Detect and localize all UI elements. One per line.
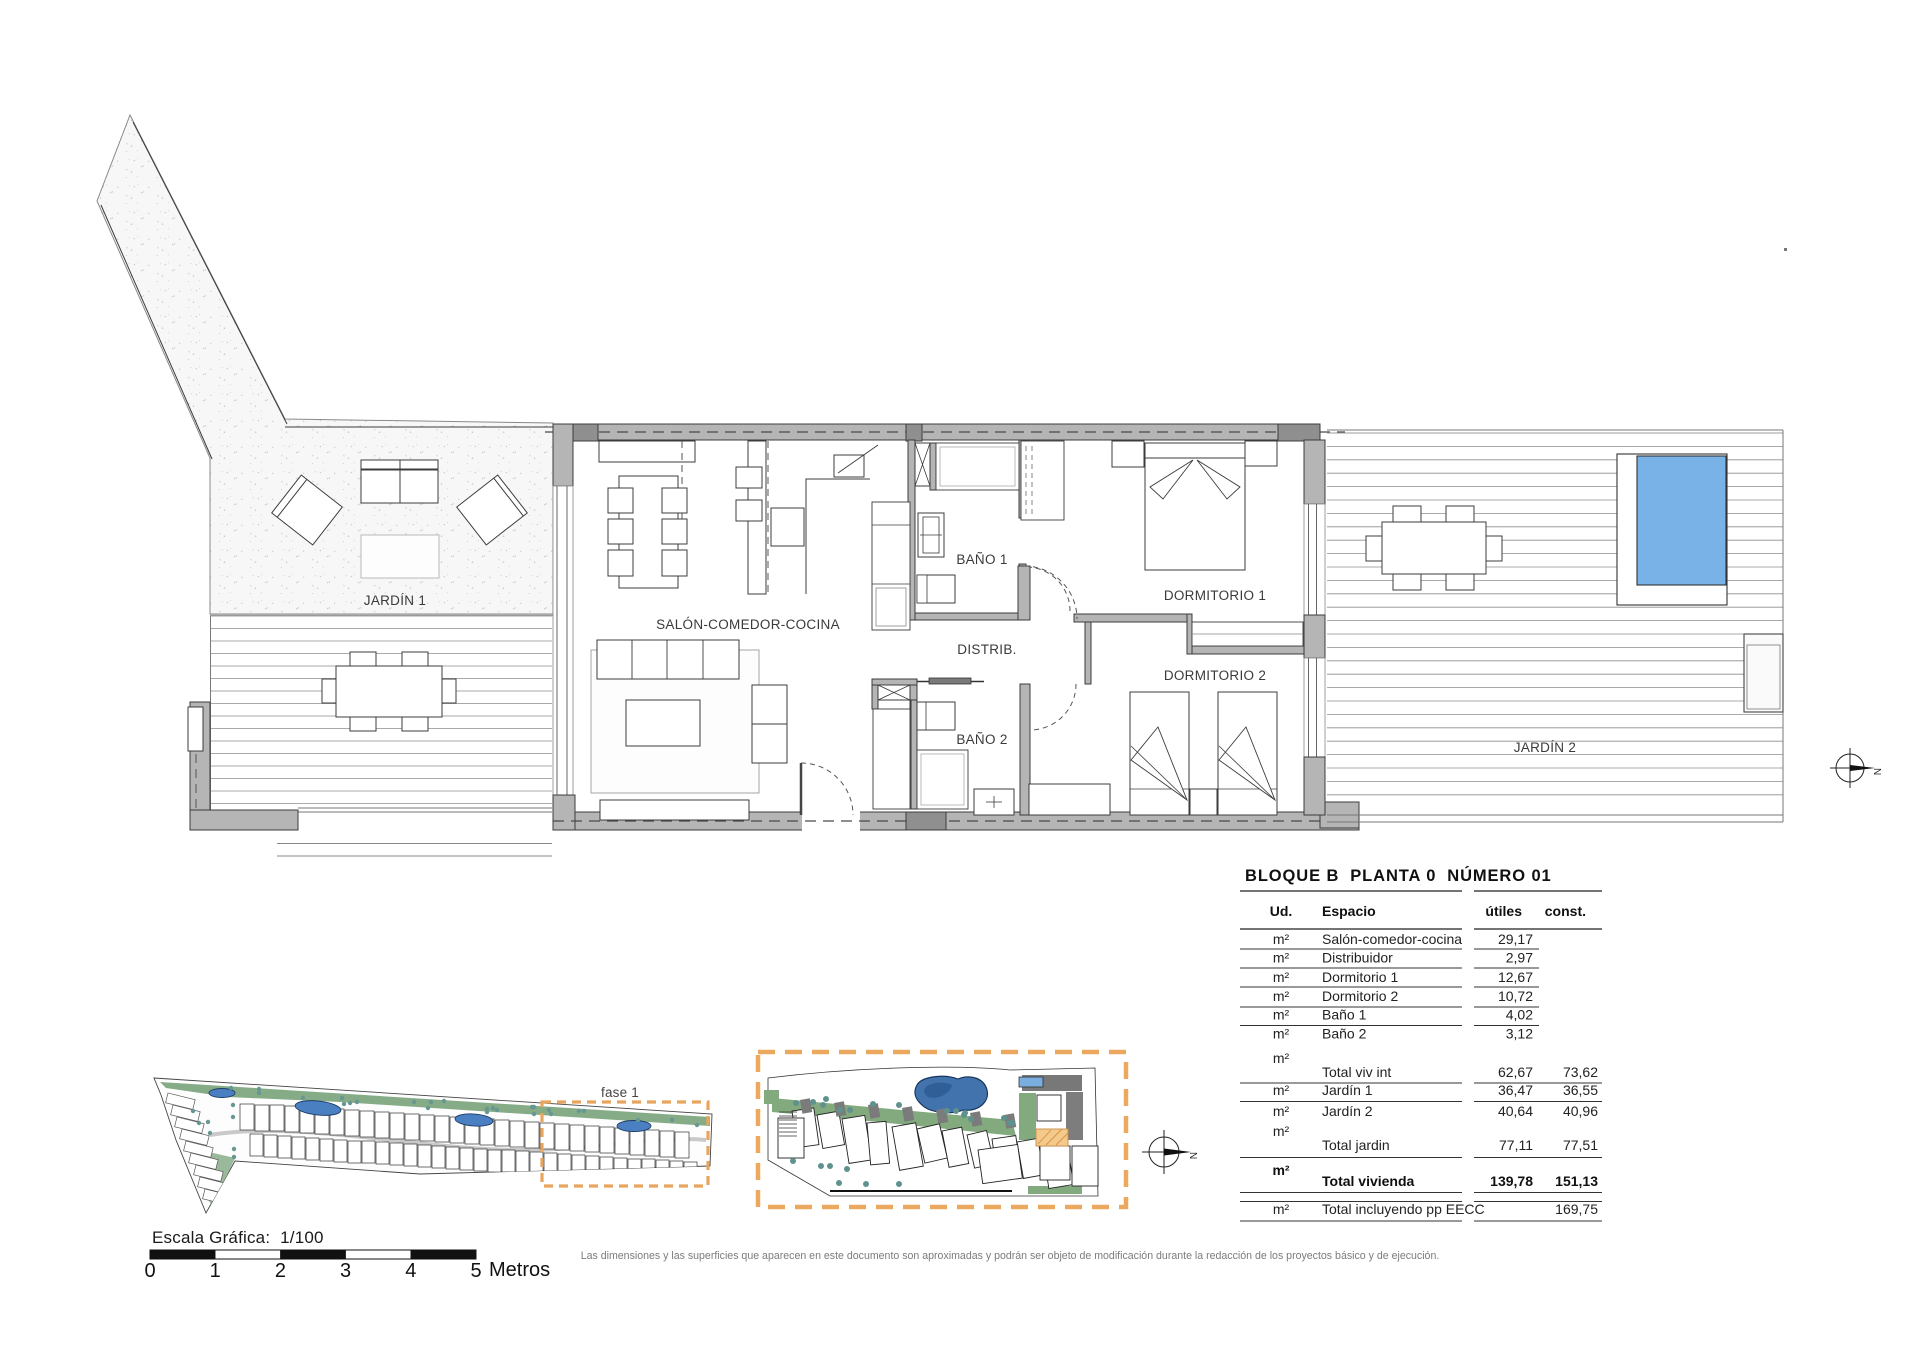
svg-text:DISTRIB.: DISTRIB.: [957, 642, 1016, 657]
svg-text:Baño 2: Baño 2: [1322, 1026, 1367, 1042]
svg-text:169,75: 169,75: [1555, 1201, 1598, 1217]
svg-text:77,51: 77,51: [1563, 1137, 1598, 1153]
svg-text:Salón-comedor-cocina: Salón-comedor-cocina: [1322, 931, 1462, 947]
svg-text:Distribuidor: Distribuidor: [1322, 950, 1393, 966]
svg-text:29,17: 29,17: [1498, 931, 1533, 947]
svg-text:BAÑO 1: BAÑO 1: [956, 552, 1007, 567]
svg-text:N: N: [1871, 768, 1882, 775]
svg-text:3,12: 3,12: [1506, 1026, 1533, 1042]
svg-text:5: 5: [470, 1260, 481, 1282]
svg-text:2,97: 2,97: [1506, 950, 1533, 966]
svg-text:m²: m²: [1273, 988, 1290, 1004]
svg-text:Metros: Metros: [489, 1259, 550, 1281]
svg-text:DORMITORIO 2: DORMITORIO 2: [1164, 668, 1266, 683]
svg-text:útiles: útiles: [1485, 903, 1522, 919]
svg-text:const.: const.: [1545, 903, 1586, 919]
svg-text:N: N: [1187, 1152, 1198, 1159]
svg-text:m²: m²: [1273, 1103, 1290, 1119]
svg-text:fase 1: fase 1: [601, 1085, 639, 1100]
svg-text:m²: m²: [1272, 1162, 1289, 1178]
svg-text:77,11: 77,11: [1499, 1137, 1533, 1153]
svg-text:40,64: 40,64: [1498, 1103, 1533, 1119]
svg-text:10,72: 10,72: [1498, 988, 1533, 1004]
svg-text:JARDÍN 2: JARDÍN 2: [1514, 740, 1576, 755]
svg-text:BLOQUE B PLANTA 0 NÚMERO 01: BLOQUE B PLANTA 0 NÚMERO 01: [1245, 866, 1552, 885]
svg-text:Dormitorio 2: Dormitorio 2: [1322, 988, 1398, 1004]
svg-text:m²: m²: [1273, 1201, 1290, 1217]
svg-text:JARDÍN 1: JARDÍN 1: [364, 593, 426, 608]
svg-text:4: 4: [405, 1260, 416, 1282]
svg-text:m²: m²: [1273, 1082, 1290, 1098]
svg-text:1: 1: [210, 1260, 221, 1282]
svg-text:Espacio: Espacio: [1322, 903, 1376, 919]
svg-text:36,55: 36,55: [1563, 1082, 1598, 1098]
svg-text:SALÓN-COMEDOR-COCINA: SALÓN-COMEDOR-COCINA: [656, 617, 840, 632]
svg-text:m²: m²: [1273, 969, 1290, 985]
svg-text:151,13: 151,13: [1555, 1173, 1598, 1189]
svg-text:4,02: 4,02: [1506, 1007, 1533, 1023]
svg-text:BAÑO 2: BAÑO 2: [956, 732, 1007, 747]
svg-text:DORMITORIO 1: DORMITORIO 1: [1164, 588, 1266, 603]
svg-text:Jardín 2: Jardín 2: [1322, 1103, 1373, 1119]
svg-text:Escala Gráfica: 1/100: Escala Gráfica: 1/100: [152, 1228, 324, 1247]
svg-text:m²: m²: [1273, 1050, 1290, 1066]
svg-text:Jardín 1: Jardín 1: [1322, 1082, 1373, 1098]
svg-text:m²: m²: [1273, 1026, 1290, 1042]
svg-text:62,67: 62,67: [1498, 1064, 1533, 1080]
svg-text:Total jardin: Total jardin: [1322, 1137, 1390, 1153]
svg-text:Las dimensiones y las superfic: Las dimensiones y las superficies que ap…: [581, 1250, 1440, 1262]
svg-text:m²: m²: [1273, 931, 1290, 947]
svg-text:Baño 1: Baño 1: [1322, 1007, 1367, 1023]
svg-text:40,96: 40,96: [1563, 1103, 1598, 1119]
svg-text:Total incluyendo pp EECC: Total incluyendo pp EECC: [1322, 1201, 1485, 1217]
svg-text:Total vivienda: Total vivienda: [1322, 1173, 1415, 1189]
svg-text:73,62: 73,62: [1563, 1064, 1598, 1080]
svg-text:0: 0: [144, 1260, 155, 1282]
svg-text:36,47: 36,47: [1498, 1082, 1533, 1098]
svg-text:m²: m²: [1273, 1123, 1290, 1139]
svg-text:Total viv int: Total viv int: [1322, 1064, 1391, 1080]
svg-text:139,78: 139,78: [1490, 1173, 1533, 1189]
svg-text:m²: m²: [1273, 1007, 1290, 1023]
svg-text:2: 2: [275, 1260, 286, 1282]
svg-text:Dormitorio 1: Dormitorio 1: [1322, 969, 1398, 985]
svg-text:12,67: 12,67: [1498, 969, 1533, 985]
svg-text:Ud.: Ud.: [1270, 903, 1293, 919]
svg-text:m²: m²: [1273, 950, 1290, 966]
svg-text:3: 3: [340, 1260, 351, 1282]
